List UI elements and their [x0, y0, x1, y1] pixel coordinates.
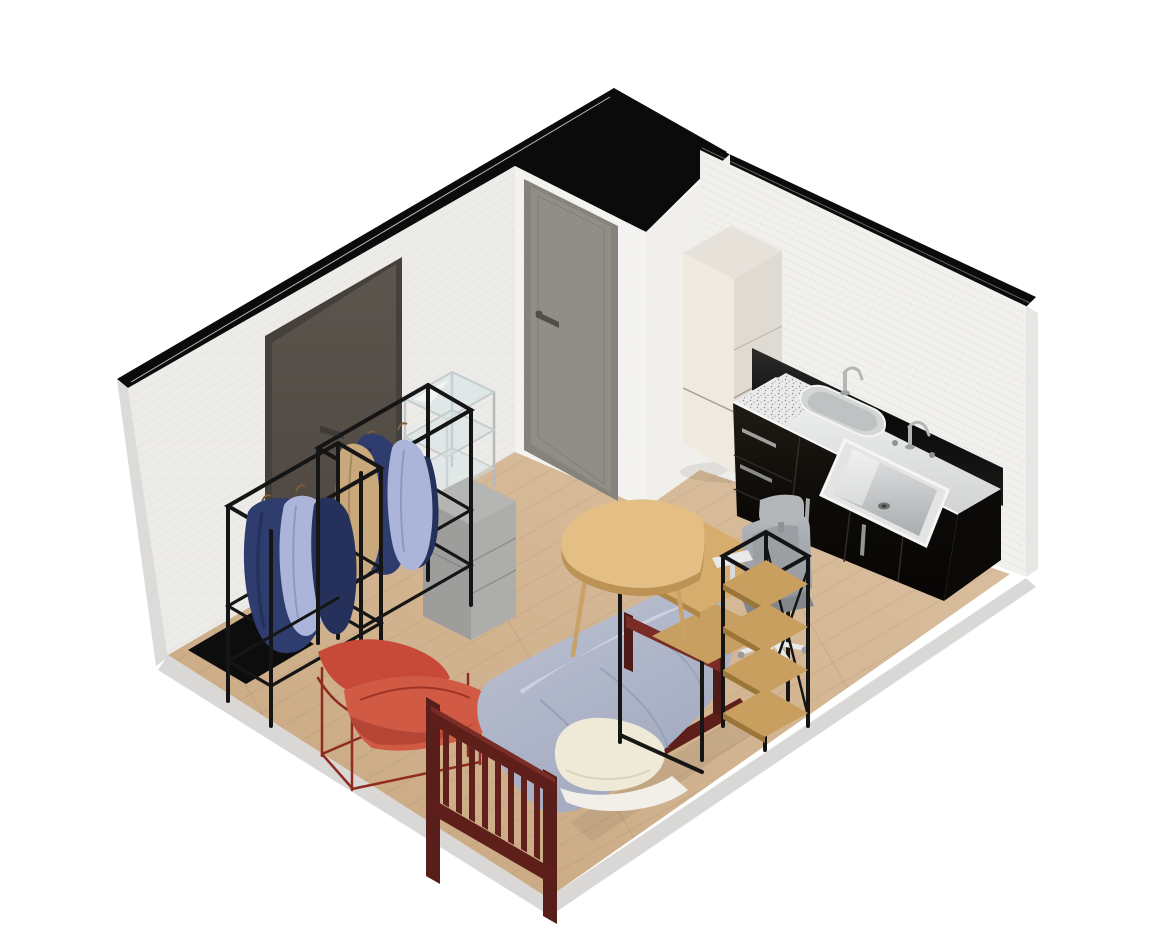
cabinet-right-face[interactable]	[471, 501, 516, 640]
right-wall-outer-edge	[1026, 306, 1038, 577]
fridge-front[interactable]	[683, 253, 734, 473]
sink-drain-center	[882, 505, 887, 508]
entry-door-handle-base	[320, 427, 327, 434]
interior-door[interactable]	[524, 179, 618, 501]
chair-headrest[interactable]	[759, 495, 804, 525]
room-render-canvas	[0, 0, 1170, 934]
interior-door-handle-base	[536, 311, 543, 318]
headrest-stem	[778, 522, 784, 532]
clothes-on-left-rack[interactable]	[244, 485, 357, 653]
interior-door-panel[interactable]	[531, 187, 611, 493]
